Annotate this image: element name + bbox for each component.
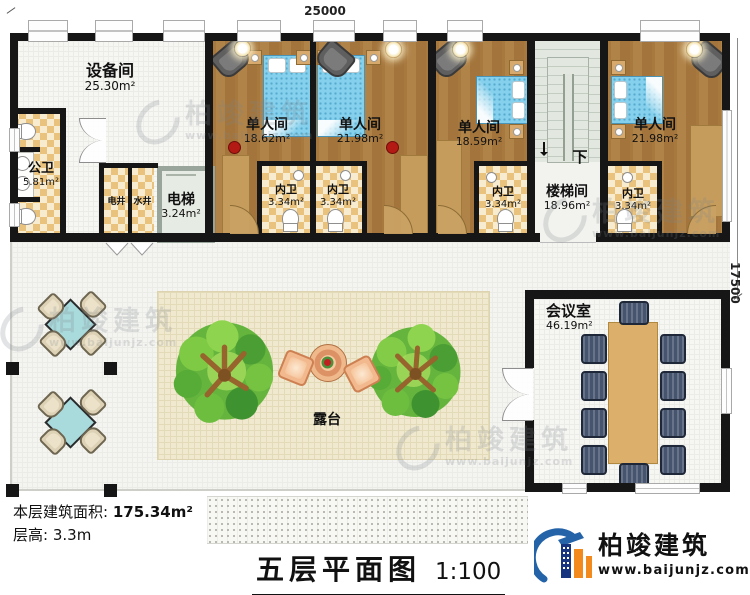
wall-ensuite <box>257 161 310 166</box>
room-label-elevator: 电梯3.24m² <box>153 192 209 221</box>
toilet <box>616 209 633 232</box>
wall-ensuite <box>657 161 662 233</box>
wall-meeting-bottom <box>698 483 730 492</box>
sink <box>486 172 497 183</box>
wall-ensuite <box>474 161 527 166</box>
column <box>6 484 19 497</box>
conference-chair <box>581 408 607 438</box>
sink <box>340 170 351 181</box>
tree <box>364 322 467 422</box>
nightstand <box>366 50 381 65</box>
room-label-public-wc: 公卫5.81m² <box>18 162 64 188</box>
stairwell-opening <box>540 233 596 243</box>
window <box>635 483 700 494</box>
wall-meeting-bottom <box>525 483 562 492</box>
conference-chair <box>660 371 686 401</box>
floor-area-line: 本层建筑面积: 175.34m² <box>13 501 193 522</box>
window <box>383 20 417 42</box>
nightstand <box>611 60 626 75</box>
stair-down-label: 下 <box>568 149 592 166</box>
wall-meeting-left <box>525 420 534 492</box>
pillow <box>512 102 525 120</box>
stair-direction-arrow <box>543 142 545 155</box>
room-label-terrace: 露台 <box>292 412 362 428</box>
ceiling-light <box>686 41 703 58</box>
title-text: 五层平面图 <box>256 553 421 586</box>
pillow <box>512 81 525 99</box>
room-label-ensuite3: 内卫3.34m² <box>479 186 527 210</box>
window <box>9 128 20 152</box>
round-table <box>309 344 347 382</box>
column <box>104 484 117 497</box>
room-label-bedroom3: 单人间18.59m² <box>434 120 524 149</box>
shaft-door <box>130 242 154 257</box>
conference-chair <box>581 445 607 475</box>
wall-ensuite <box>316 161 367 166</box>
room-label-water-shaft: 水井 <box>130 197 155 207</box>
room-label-ensuite2: 内卫3.34m² <box>314 184 362 208</box>
toilet <box>282 209 299 232</box>
wall-ensuite <box>362 161 367 233</box>
window <box>163 20 205 42</box>
pillow <box>614 81 627 99</box>
wall-ensuite <box>608 161 662 166</box>
window <box>722 110 732 222</box>
window <box>237 20 281 42</box>
window <box>447 20 483 42</box>
bed-bedroom3 <box>476 76 528 124</box>
drawing-title: 五层平面图1:100 <box>252 548 505 595</box>
dimension-line-right <box>737 38 738 300</box>
nightstand <box>509 60 524 75</box>
wall-corridor-bottom <box>10 233 730 242</box>
wall-meeting-right <box>721 412 730 492</box>
column <box>104 362 117 375</box>
ceiling-light <box>234 40 251 57</box>
window <box>95 20 133 42</box>
dimension-top: 25000 <box>285 4 365 18</box>
window <box>562 483 587 494</box>
wall-meeting-top <box>525 290 730 299</box>
room-label-meeting: 会议室46.19m² <box>546 303 636 333</box>
room-label-bedroom4: 单人间21.98m² <box>610 117 700 146</box>
terrace-bottom-edge <box>10 489 528 491</box>
ceiling-light <box>385 41 402 58</box>
ceiling-light <box>452 41 469 58</box>
duvet-fold <box>477 77 493 123</box>
window <box>9 203 20 227</box>
stair-flight <box>535 41 600 162</box>
shaft-door <box>105 242 129 257</box>
room-label-bedroom2: 单人间21.98m² <box>315 117 405 146</box>
conference-chair <box>581 334 607 364</box>
room-label-ensuite1: 内卫3.34m² <box>262 184 310 208</box>
tree <box>168 317 281 425</box>
company-website: www.baijunjz.com <box>598 564 743 577</box>
room-label-stairwell: 楼梯间18.96m² <box>527 184 607 213</box>
floor-area-value: 175.34m² <box>113 503 193 521</box>
conference-table <box>608 322 658 464</box>
wall-meeting-left <box>525 290 534 368</box>
room-label-elec-shaft: 电井 <box>104 197 129 207</box>
conference-chair <box>660 445 686 475</box>
toilet <box>497 209 514 232</box>
conference-chair <box>660 408 686 438</box>
window <box>313 20 355 42</box>
floor-height-label: 层高: <box>13 526 48 544</box>
elevator-door-line <box>166 174 196 176</box>
window <box>721 368 732 414</box>
window <box>640 20 700 42</box>
sink <box>293 170 304 181</box>
wall-meeting-bottom <box>585 483 635 492</box>
room-label-equipment: 设备间25.30m² <box>55 62 165 94</box>
toilet <box>327 209 344 232</box>
floor-area-label: 本层建筑面积: <box>13 503 108 521</box>
company-name: 柏竣建筑 <box>598 533 743 558</box>
pillow <box>268 58 286 73</box>
sink <box>622 172 633 183</box>
company-logo-icon <box>534 527 598 591</box>
wall-wc-stall <box>12 197 40 202</box>
nightstand <box>296 50 311 65</box>
floor-plan-canvas: 设备间25.30m² 公卫5.81m² 电井 水井 电梯3.24m² 单人间18… <box>0 0 750 595</box>
floor-height-line: 层高: 3.3m <box>13 524 91 545</box>
dimension-tick <box>7 7 16 14</box>
room-label-bedroom1: 单人间18.62m² <box>222 117 312 146</box>
window <box>28 20 68 42</box>
company-logo-text: 柏竣建筑 www.baijunjz.com <box>598 533 743 577</box>
title-scale: 1:100 <box>435 559 501 585</box>
floor-height-value: 3.3m <box>53 526 91 544</box>
wall-wc <box>10 108 66 114</box>
conference-chair <box>581 371 607 401</box>
column <box>6 362 19 375</box>
conference-chair <box>660 334 686 364</box>
paved-walkway <box>207 496 528 544</box>
room-label-ensuite4: 内卫3.34m² <box>609 188 657 212</box>
